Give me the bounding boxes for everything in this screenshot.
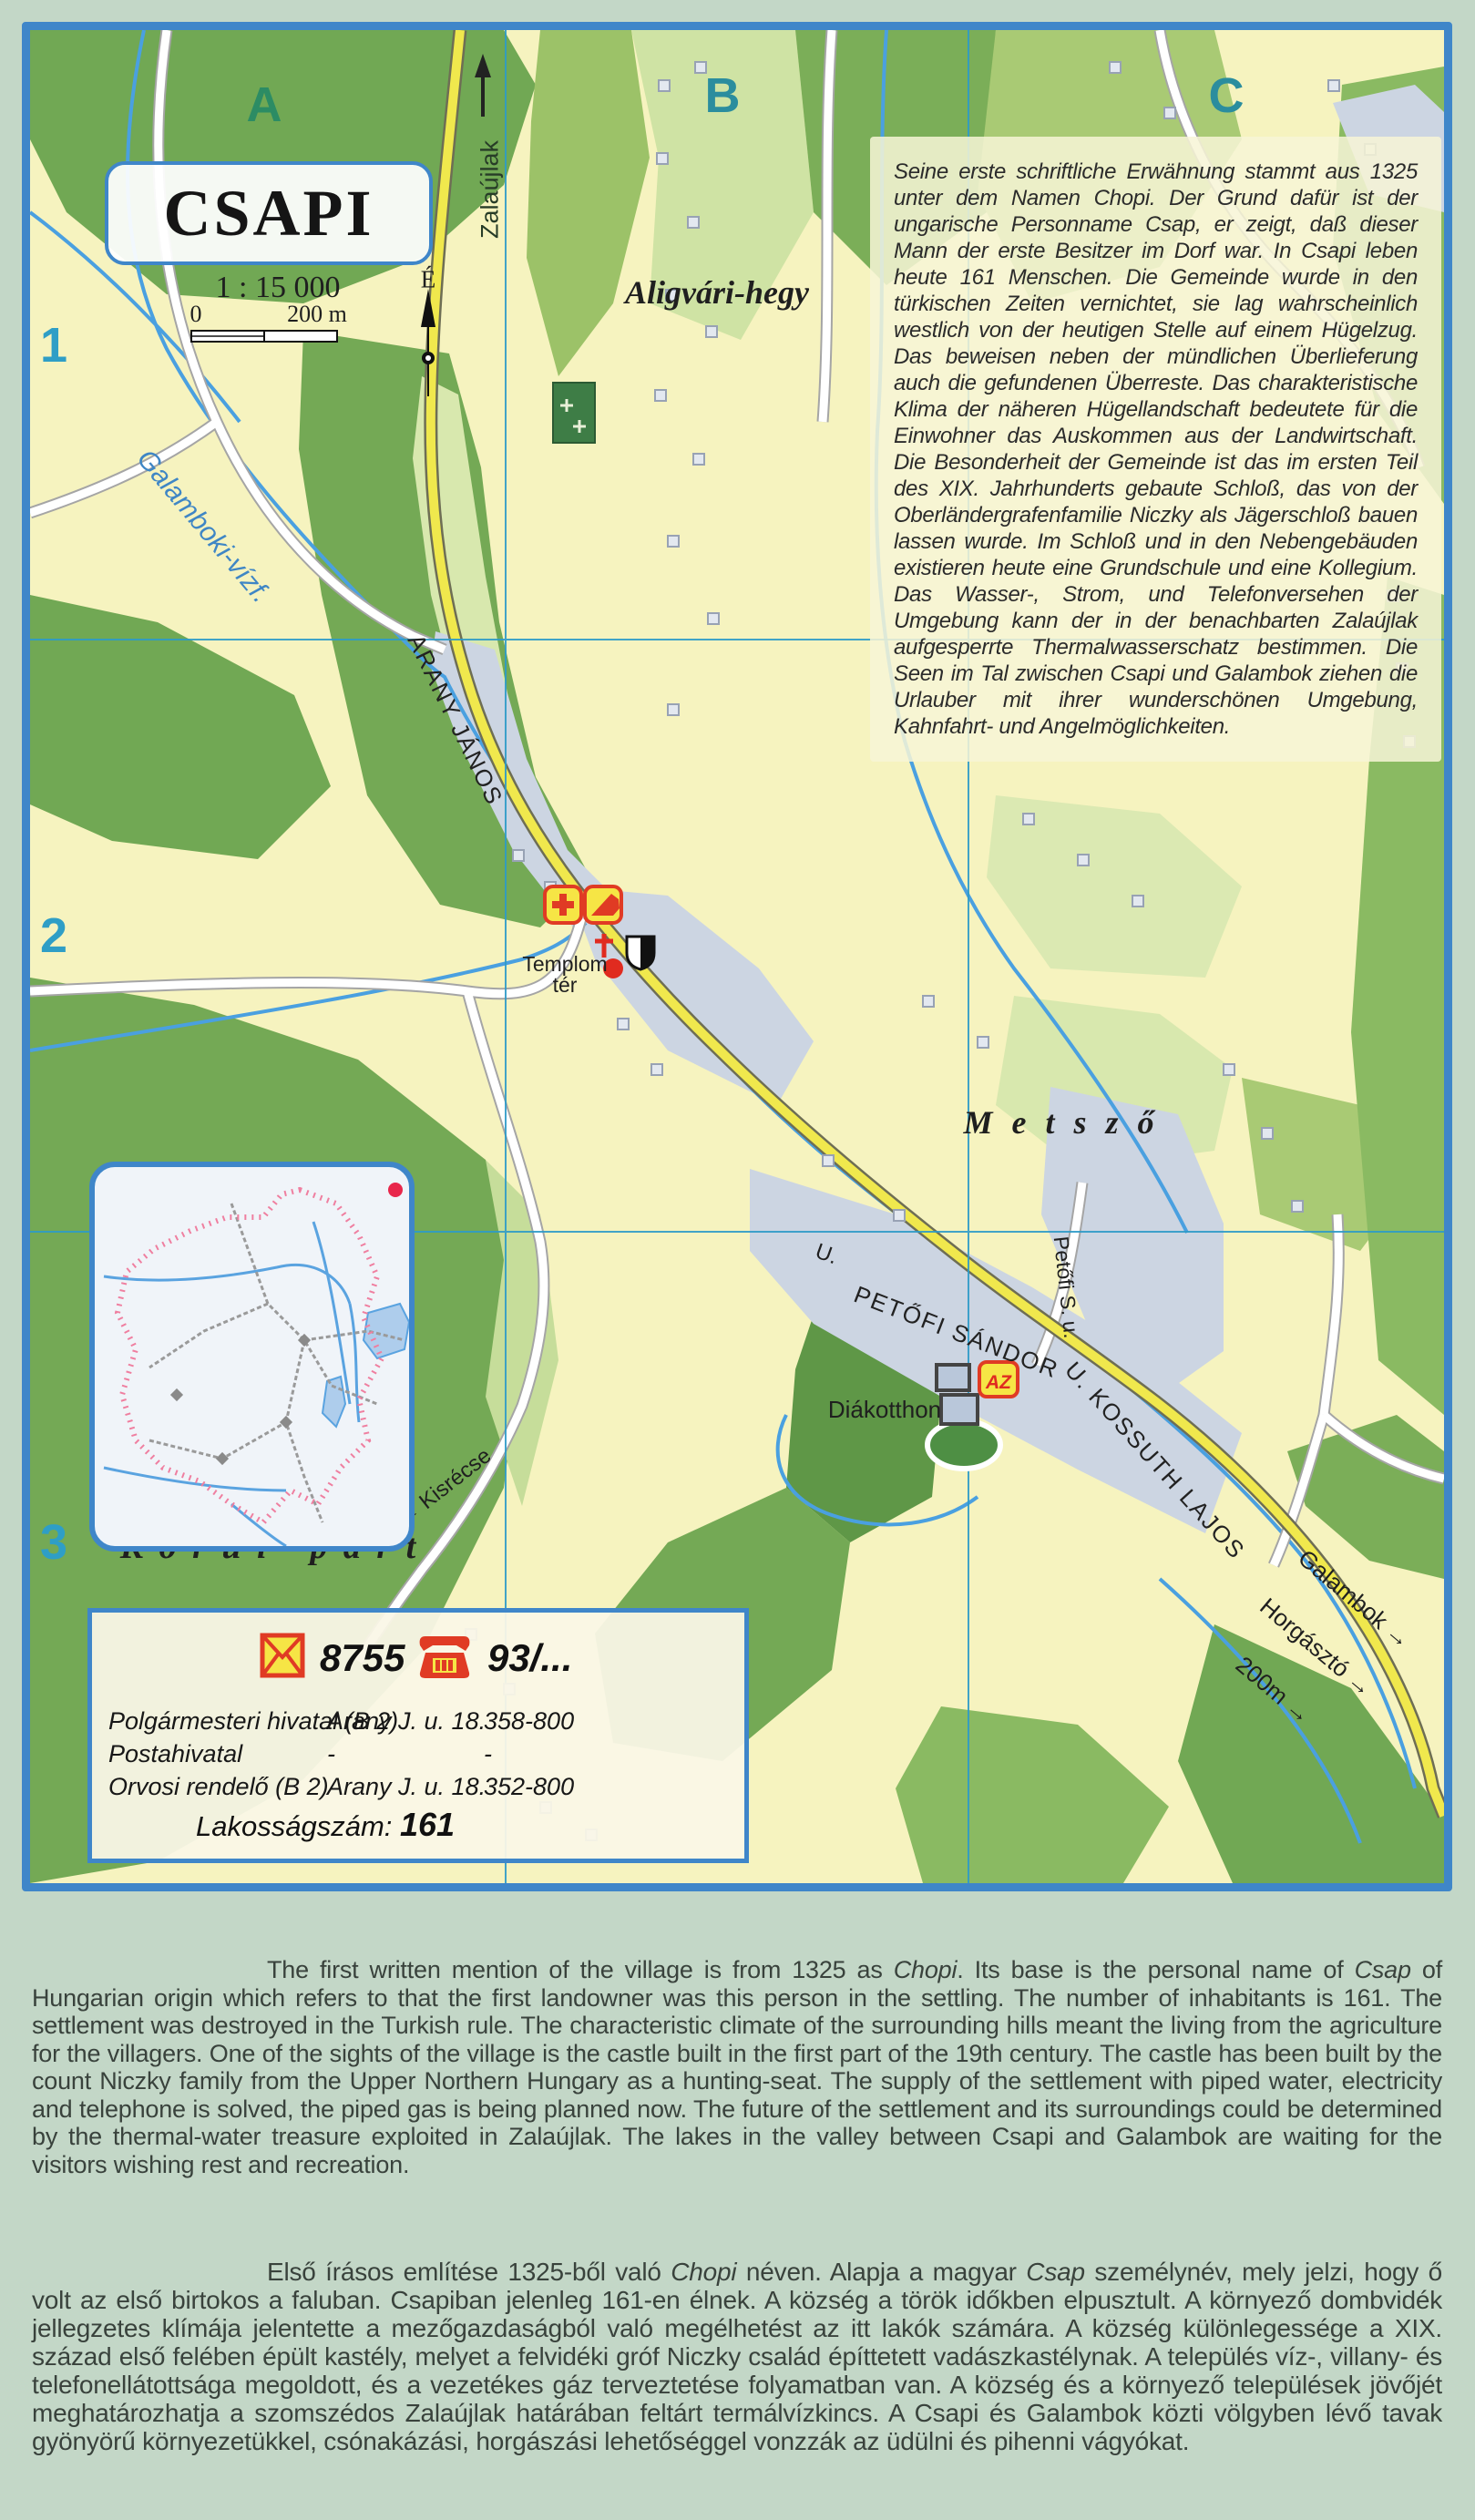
- info-row: Orvosi rendelő (B 2) Arany J. u. 18. 352…: [92, 1773, 744, 1804]
- inset-streams: [104, 1222, 359, 1546]
- info-name: Orvosi rendelő (B 2): [108, 1773, 329, 1801]
- label-aligvari-hegy: Aligvári-hegy: [625, 276, 809, 309]
- map-title-box: CSAPI: [105, 161, 433, 265]
- cemetery-icon: [553, 383, 595, 443]
- grid-row-3: 3: [40, 1518, 67, 1567]
- grid-column-c: C: [1209, 71, 1245, 120]
- label-metszo: M e t s z ő: [963, 1106, 1159, 1139]
- post-icon: [585, 886, 621, 923]
- pharmacy-icon: [545, 886, 581, 923]
- info-address: -: [327, 1740, 335, 1768]
- inset-canvas: [95, 1167, 409, 1546]
- grid-column-b: B: [705, 71, 741, 120]
- population-label: Lakosságszám:: [196, 1810, 392, 1842]
- grid-row-1: 1: [40, 321, 67, 370]
- map-scale-ratio: 1 : 15 000: [216, 272, 341, 303]
- inset-map: [89, 1162, 415, 1552]
- info-name: Postahivatal: [108, 1740, 242, 1768]
- inset-junction-marks: [170, 1334, 311, 1465]
- atlas-page: AZ A B C 1 2 3: [0, 0, 1475, 2520]
- info-phone: -: [484, 1740, 492, 1768]
- info-row: Postahivatal - -: [92, 1740, 744, 1771]
- templom-line1: Templom: [522, 954, 607, 975]
- population-line: Lakosságszám: 161: [196, 1806, 455, 1844]
- info-address: Arany J. u. 18.: [327, 1773, 486, 1801]
- scale-bar: [191, 331, 337, 342]
- info-phone: 352-800: [484, 1773, 574, 1801]
- info-address: Arany J. u. 18.: [327, 1707, 486, 1736]
- info-phone: 358-800: [484, 1707, 574, 1736]
- population-value: 161: [400, 1806, 455, 1843]
- inset-small-lake: [323, 1377, 345, 1427]
- grid-row-2: 2: [40, 911, 67, 960]
- north-label: É: [421, 268, 436, 292]
- map-title: CSAPI: [163, 176, 374, 251]
- town-map: AZ A B C 1 2 3: [22, 22, 1452, 1891]
- phone-icon: [416, 1633, 473, 1680]
- phone-prefix: 93/...: [487, 1636, 572, 1680]
- stadium: [927, 1421, 1000, 1469]
- coat-of-arms-icon: [627, 937, 654, 969]
- label-templom-ter: Templom tér: [522, 954, 607, 996]
- templom-line2: tér: [522, 975, 607, 996]
- info-box: 8755 93/... Polgármesteri hivatal (B 2) …: [87, 1608, 749, 1863]
- scale-200m: 200 m: [287, 302, 347, 326]
- german-description: Seine erste schriftliche Erwähnung stamm…: [870, 137, 1441, 762]
- hungarian-paragraph: Első írásos említése 1325-ből való Chopi…: [32, 2258, 1442, 2455]
- label-zalaujlak: Zalaújlak: [478, 140, 503, 239]
- inset-town-dot: [388, 1183, 403, 1197]
- svg-text:AZ: AZ: [985, 1372, 1012, 1393]
- info-row: Polgármesteri hivatal (B 2) Arany J. u. …: [92, 1707, 744, 1738]
- postal-code: 8755: [320, 1636, 405, 1680]
- mail-icon: [260, 1633, 305, 1678]
- english-paragraph: The first written mention of the village…: [32, 1956, 1442, 2178]
- label-diakotthon: Diákotthon: [828, 1398, 941, 1421]
- grid-column-a: A: [247, 80, 282, 129]
- scale-zero: 0: [190, 302, 202, 326]
